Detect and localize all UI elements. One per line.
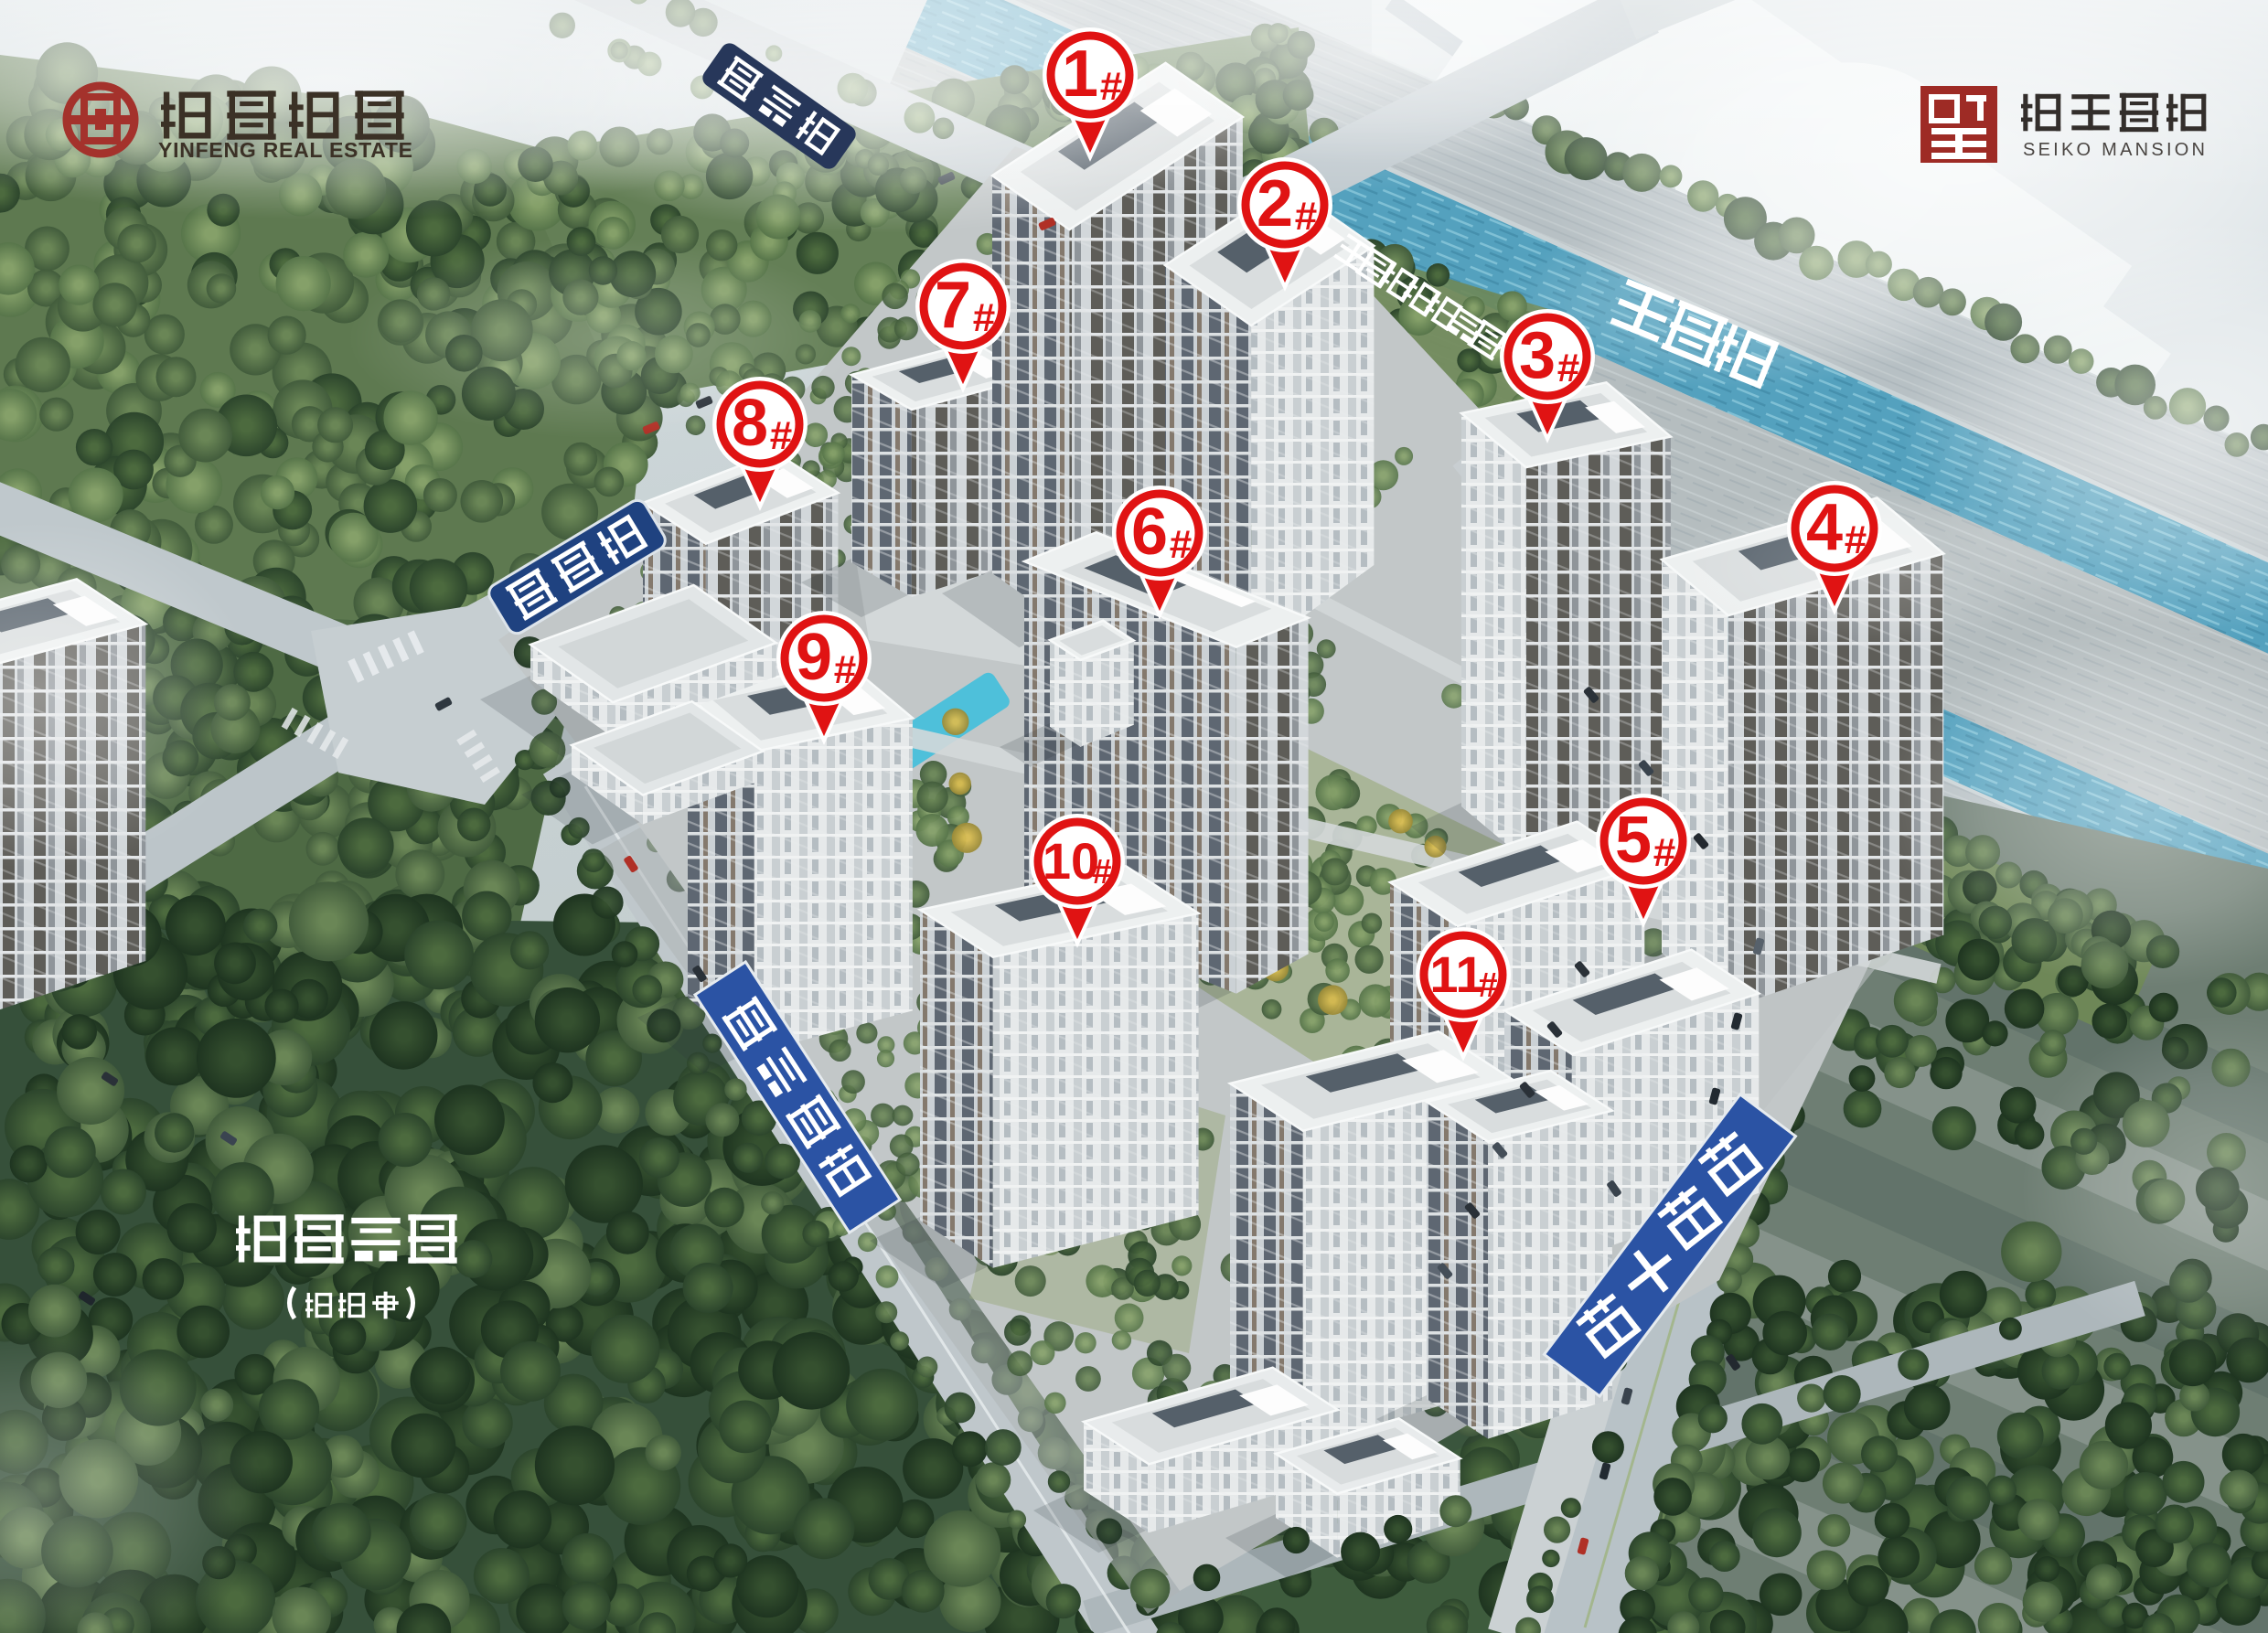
svg-text:7: 7 bbox=[935, 269, 971, 342]
svg-text:3: 3 bbox=[1519, 319, 1556, 392]
svg-text:4: 4 bbox=[1806, 491, 1843, 564]
svg-text:9: 9 bbox=[796, 621, 832, 694]
svg-text:#: # bbox=[1100, 64, 1122, 109]
svg-text:#: # bbox=[1092, 853, 1111, 891]
svg-text:#: # bbox=[770, 413, 792, 458]
svg-text:SEIKO MANSION: SEIKO MANSION bbox=[2023, 140, 2208, 160]
svg-text:#: # bbox=[1478, 966, 1497, 1005]
svg-text:6: 6 bbox=[1131, 496, 1168, 569]
svg-text:#: # bbox=[1653, 830, 1675, 875]
svg-text:10: 10 bbox=[1043, 832, 1099, 890]
svg-text:#: # bbox=[973, 295, 995, 340]
svg-text:2: 2 bbox=[1257, 167, 1293, 240]
svg-text:#: # bbox=[1295, 194, 1317, 239]
svg-text:#: # bbox=[834, 647, 856, 692]
svg-text:1: 1 bbox=[1062, 37, 1098, 111]
svg-text:#: # bbox=[1557, 346, 1579, 390]
svg-text:5: 5 bbox=[1615, 804, 1652, 877]
svg-text:#: # bbox=[1845, 518, 1867, 562]
svg-text:#: # bbox=[1170, 522, 1192, 567]
svg-text:11: 11 bbox=[1429, 945, 1483, 1003]
svg-text:YINFENG REAL ESTATE: YINFENG REAL ESTATE bbox=[158, 138, 412, 162]
svg-text:8: 8 bbox=[732, 387, 768, 460]
